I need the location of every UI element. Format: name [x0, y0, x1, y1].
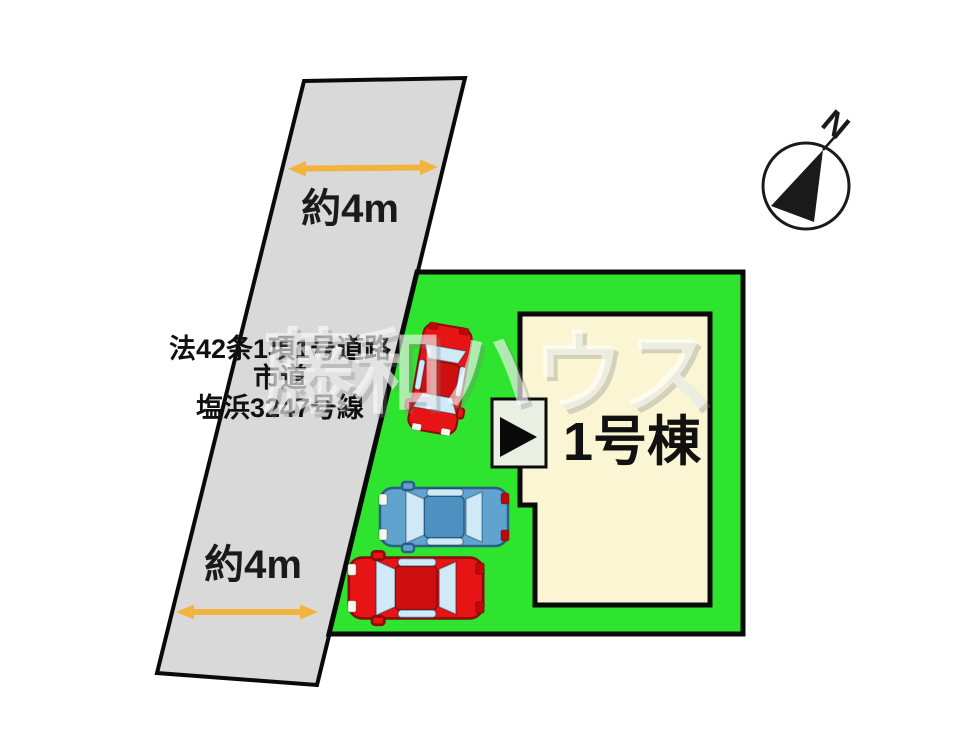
site-plan: 約4m 約4m 法42条1項1号道路 市道 塩浜3247号線 1号棟	[0, 0, 978, 733]
compass-icon: N	[763, 102, 857, 229]
watermark-text: 藤和ハウス	[262, 323, 712, 425]
watermark: 藤和ハウス 藤和ハウス	[262, 323, 716, 429]
car-red-horizontal-icon	[348, 551, 485, 625]
site-plan-svg: 約4m 約4m 法42条1項1号道路 市道 塩浜3247号線 1号棟	[0, 0, 978, 733]
car-blue-icon	[379, 482, 509, 552]
dimension-label-bottom: 約4m	[204, 543, 302, 587]
dimension-label-top: 約4m	[301, 187, 399, 231]
compass-north-label: N	[815, 102, 857, 146]
